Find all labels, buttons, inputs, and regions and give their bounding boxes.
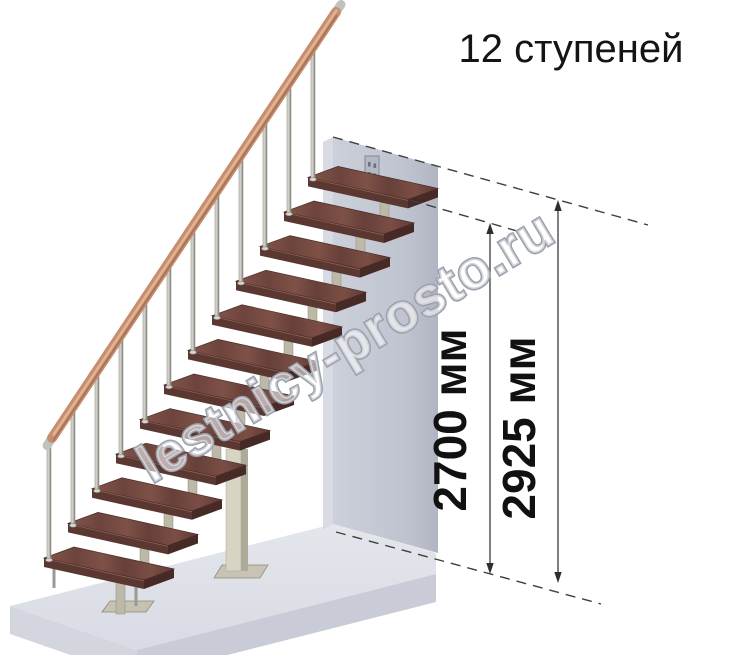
dimension-label-2925: 2925 мм: [493, 336, 545, 519]
baluster-foot: [166, 385, 173, 389]
baluster-foot: [94, 489, 101, 493]
staircase-illustration: 2700 мм 2925 мм 12 ступеней lestnicy-pro…: [0, 0, 744, 655]
baluster-foot: [190, 351, 197, 355]
tread: [68, 512, 198, 554]
baluster-foot: [238, 281, 245, 285]
baluster-foot: [286, 212, 293, 216]
baluster-foot: [214, 316, 221, 320]
arrowhead-down: [554, 572, 561, 583]
baluster-foot: [142, 420, 149, 424]
dimension-arrow-2925: [554, 200, 561, 583]
baluster-foot: [310, 178, 317, 182]
floor-slab: [10, 524, 436, 655]
page-title: 12 ступеней: [459, 27, 684, 71]
balusters-group: [46, 47, 317, 562]
arrowhead-down: [486, 563, 493, 574]
staircase-diagram-page: 2700 мм 2925 мм 12 ступеней lestnicy-pro…: [0, 0, 744, 655]
baluster-foot: [46, 558, 53, 562]
baluster-foot: [262, 247, 269, 251]
dimension-label-2700: 2700 мм: [424, 328, 476, 511]
baluster-foot: [118, 454, 125, 458]
floor-base-plate: [102, 601, 154, 612]
bracket-slot: [374, 164, 377, 169]
baluster-foot: [70, 524, 77, 528]
arrowhead-up: [554, 200, 561, 211]
bracket-slot: [368, 162, 371, 167]
